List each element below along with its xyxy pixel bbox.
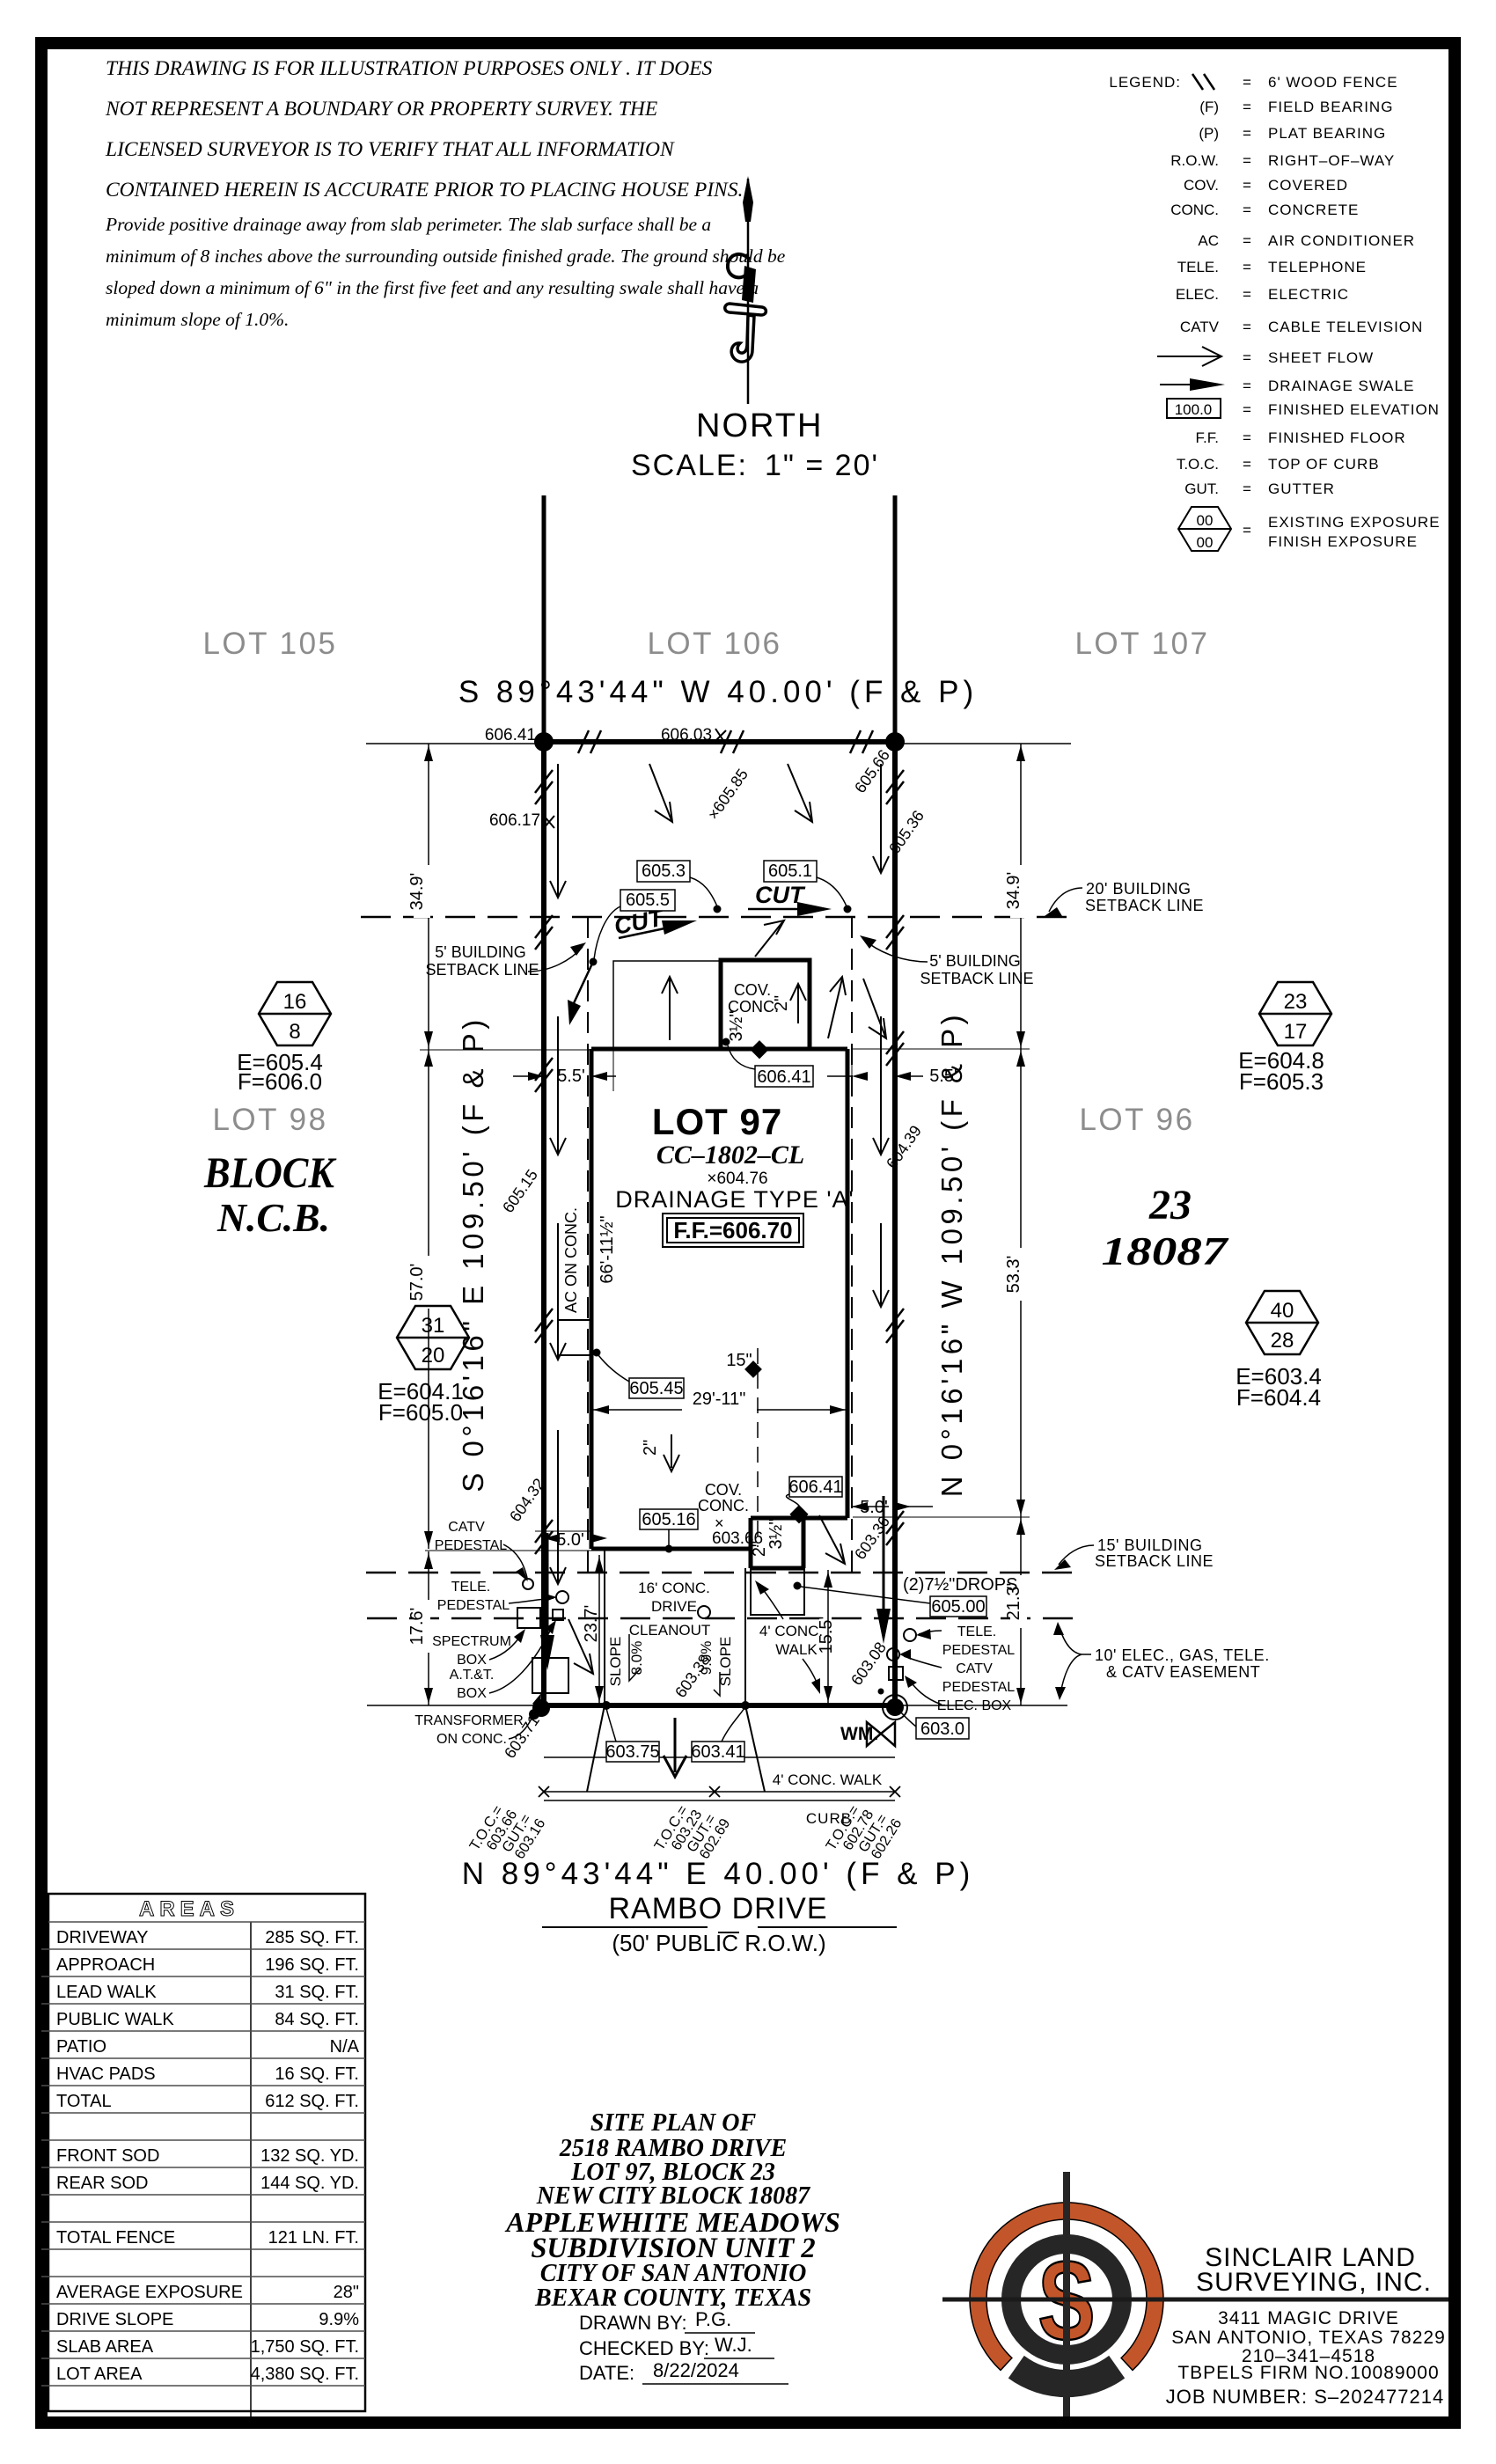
svg-text:5.5': 5.5' [557, 1067, 585, 1086]
svg-text:NORTH: NORTH [696, 407, 823, 444]
svg-text:COV.: COV. [1184, 177, 1219, 194]
svg-text:CONTAINED HEREIN IS ACCURATE P: CONTAINED HEREIN IS ACCURATE PRIOR TO PL… [106, 179, 743, 202]
svg-text:F.F.: F.F. [1196, 429, 1219, 446]
svg-text:605.1: 605.1 [768, 862, 812, 881]
svg-text:F=605.3: F=605.3 [1239, 1068, 1324, 1095]
svg-text:8.0%: 8.0% [628, 1641, 645, 1676]
svg-text:LOT 98: LOT 98 [212, 1103, 327, 1137]
svg-text:66'-11½": 66'-11½" [598, 1215, 617, 1283]
svg-text:FINISH EXPOSURE: FINISH EXPOSURE [1268, 533, 1418, 550]
svg-text:606.41: 606.41 [757, 1067, 810, 1087]
svg-text:PEDESTAL: PEDESTAL [435, 1538, 508, 1553]
svg-text:603.0: 603.0 [920, 1720, 964, 1739]
svg-text:SITE PLAN OF: SITE PLAN OF [590, 2109, 757, 2137]
svg-text:=: = [1243, 232, 1251, 249]
svg-text:FIELD BEARING: FIELD BEARING [1268, 99, 1393, 115]
svg-text:(50' PUBLIC R.O.W.): (50' PUBLIC R.O.W.) [612, 1930, 825, 1956]
svg-text:FRONT SOD: FRONT SOD [56, 2146, 159, 2166]
svg-text:DATE:: DATE: [579, 2362, 634, 2384]
svg-text:8: 8 [289, 1020, 300, 1044]
svg-text:LOT 107: LOT 107 [1074, 627, 1209, 661]
svg-text:DRIVE: DRIVE [651, 1598, 697, 1615]
svg-text:132 SQ. YD.: 132 SQ. YD. [260, 2146, 359, 2166]
svg-text:CONC.: CONC. [1170, 202, 1219, 218]
svg-text:SETBACK LINE: SETBACK LINE [425, 961, 539, 979]
svg-text:TELE.: TELE. [1177, 259, 1219, 275]
svg-text:APPROACH: APPROACH [56, 1955, 155, 1975]
svg-text:JOB NUMBER: S–202477214: JOB NUMBER: S–202477214 [1166, 2386, 1445, 2408]
svg-text:P.G.: P.G. [695, 2308, 731, 2330]
svg-text:ELEC. BOX: ELEC. BOX [937, 1698, 1012, 1713]
svg-text:DRAWN BY:: DRAWN BY: [579, 2312, 687, 2334]
svg-text:=: = [1243, 177, 1251, 194]
svg-text:603.41: 603.41 [691, 1742, 744, 1762]
svg-text:605.45: 605.45 [629, 1379, 683, 1398]
svg-text:N.C.B.: N.C.B. [216, 1195, 330, 1240]
svg-text:TELE.: TELE. [451, 1580, 490, 1595]
svg-text:=: = [1243, 74, 1251, 91]
svg-text:AVERAGE EXPOSURE: AVERAGE EXPOSURE [56, 2283, 243, 2302]
svg-text:84 SQ. FT.: 84 SQ. FT. [275, 2010, 359, 2029]
svg-text:CONC.: CONC. [728, 998, 779, 1016]
svg-text:SETBACK LINE: SETBACK LINE [920, 970, 1033, 987]
svg-text:SLAB AREA: SLAB AREA [56, 2337, 154, 2357]
svg-text:5.5': 5.5' [929, 1067, 957, 1086]
svg-text:605.00: 605.00 [931, 1597, 985, 1617]
svg-text:603.75: 603.75 [605, 1742, 659, 1762]
svg-text:ON CONC.: ON CONC. [436, 1732, 507, 1747]
svg-text:5' BUILDING: 5' BUILDING [929, 952, 1020, 970]
svg-text:FINISHED ELEVATION: FINISHED ELEVATION [1268, 401, 1440, 418]
svg-text:& CATV EASEMENT: & CATV EASEMENT [1106, 1663, 1260, 1681]
svg-text:CITY OF SAN ANTONIO: CITY OF SAN ANTONIO [540, 2260, 807, 2287]
svg-text:4' CONC. WALK: 4' CONC. WALK [773, 1771, 883, 1788]
svg-text:N 89°43'44" E 40.00' (F & P): N 89°43'44" E 40.00' (F & P) [462, 1857, 975, 1891]
svg-text:4' CONC.: 4' CONC. [759, 1623, 823, 1639]
svg-text:=: = [1243, 522, 1251, 539]
svg-text:=: = [1243, 152, 1251, 169]
svg-text:=: = [1243, 480, 1251, 497]
svg-text:CC–1802–CL: CC–1802–CL [656, 1140, 804, 1170]
svg-text:W.J.: W.J. [715, 2334, 752, 2356]
svg-text:EXISTING EXPOSURE: EXISTING EXPOSURE [1268, 514, 1441, 531]
svg-text:29'-11": 29'-11" [693, 1390, 746, 1409]
svg-text:605.3: 605.3 [642, 862, 686, 881]
svg-text:00: 00 [1197, 512, 1214, 529]
svg-text:6' WOOD FENCE: 6' WOOD FENCE [1268, 74, 1398, 91]
svg-text:20: 20 [422, 1344, 445, 1368]
svg-text:FINISHED FLOOR: FINISHED FLOOR [1268, 429, 1406, 446]
svg-text:RAMBO DRIVE: RAMBO DRIVE [608, 1892, 827, 1925]
svg-text:LOT 97: LOT 97 [652, 1101, 782, 1142]
svg-text:TOP OF CURB: TOP OF CURB [1268, 456, 1380, 473]
svg-text:AC ON CONC.: AC ON CONC. [562, 1207, 580, 1313]
svg-text:17: 17 [1284, 1020, 1308, 1044]
svg-text:DRIVEWAY: DRIVEWAY [56, 1928, 148, 1947]
svg-text:F=604.4: F=604.4 [1236, 1384, 1321, 1411]
svg-text:BLOCK: BLOCK [203, 1148, 337, 1197]
svg-text:TELEPHONE: TELEPHONE [1268, 259, 1367, 275]
svg-text:CATV: CATV [956, 1661, 993, 1676]
svg-text:AIR CONDITIONER: AIR CONDITIONER [1268, 232, 1415, 249]
svg-text:18087: 18087 [1102, 1228, 1229, 1273]
svg-text:53.3': 53.3' [1004, 1256, 1023, 1294]
svg-text:=: = [1243, 456, 1251, 473]
svg-text:SETBACK LINE: SETBACK LINE [1085, 897, 1204, 914]
svg-text:PLAT BEARING: PLAT BEARING [1268, 125, 1386, 142]
svg-text:23: 23 [1284, 990, 1308, 1014]
svg-text:A.T.&T.: A.T.&T. [450, 1668, 495, 1683]
svg-text:TELE.: TELE. [957, 1624, 996, 1639]
svg-text:BOX: BOX [457, 1686, 487, 1701]
svg-text:LEGEND:: LEGEND: [1109, 74, 1181, 91]
svg-text:LOT AREA: LOT AREA [56, 2365, 143, 2384]
svg-text:121 LN. FT.: 121 LN. FT. [268, 2228, 359, 2248]
svg-text:TBPELS FIRM NO.10089000: TBPELS FIRM NO.10089000 [1177, 2363, 1439, 2383]
svg-text:GUTTER: GUTTER [1268, 480, 1335, 497]
svg-text:BEXAR COUNTY, TEXAS: BEXAR COUNTY, TEXAS [534, 2284, 811, 2312]
svg-text:AREAS: AREAS [139, 1897, 239, 1921]
svg-text:PEDESTAL: PEDESTAL [942, 1643, 1016, 1658]
svg-text:THIS DRAWING IS FOR ILLUSTRATI: THIS DRAWING IS FOR ILLUSTRATION PURPOSE… [106, 57, 713, 80]
svg-text:57.0': 57.0' [407, 1264, 427, 1302]
svg-text:=: = [1243, 349, 1251, 366]
svg-text:=: = [1243, 401, 1251, 418]
svg-text:TOTAL FENCE: TOTAL FENCE [56, 2228, 175, 2248]
svg-text:15": 15" [726, 1351, 752, 1370]
svg-text:603.66: 603.66 [712, 1529, 763, 1548]
svg-text:9.9%: 9.9% [698, 1641, 715, 1676]
svg-text:606.41: 606.41 [485, 726, 536, 744]
svg-text:28: 28 [1271, 1329, 1294, 1353]
svg-text:9.9%: 9.9% [319, 2310, 359, 2329]
svg-text:DRAINAGE TYPE 'A': DRAINAGE TYPE 'A' [615, 1186, 854, 1213]
svg-text:23.7': 23.7' [582, 1605, 601, 1643]
svg-text:N/A: N/A [330, 2037, 360, 2057]
svg-text:34.9': 34.9' [407, 873, 427, 911]
svg-text:606.17: 606.17 [489, 811, 540, 830]
svg-text:15' BUILDING: 15' BUILDING [1097, 1536, 1202, 1554]
svg-text:606.41: 606.41 [788, 1478, 842, 1497]
svg-text:F=606.0: F=606.0 [238, 1068, 322, 1095]
svg-text:16 SQ. FT.: 16 SQ. FT. [275, 2064, 359, 2084]
svg-text:=: = [1243, 99, 1251, 115]
svg-text:3411 MAGIC DRIVE: 3411 MAGIC DRIVE [1218, 2308, 1399, 2328]
svg-text:5.0': 5.0' [556, 1530, 584, 1550]
svg-text:40: 40 [1271, 1299, 1294, 1323]
svg-text:PEDESTAL: PEDESTAL [942, 1680, 1016, 1695]
svg-text:CLEANOUT: CLEANOUT [629, 1622, 711, 1639]
svg-text:SHEET FLOW: SHEET FLOW [1268, 349, 1374, 366]
svg-text:(F): (F) [1199, 99, 1219, 115]
svg-text:COV.: COV. [734, 981, 771, 999]
svg-text:=: = [1243, 125, 1251, 142]
svg-text:(P): (P) [1199, 125, 1219, 142]
svg-text:100.0: 100.0 [1175, 401, 1213, 418]
svg-text:17.6': 17.6' [407, 1608, 427, 1646]
svg-text:16: 16 [283, 990, 307, 1014]
svg-text:3½": 3½" [766, 1519, 786, 1550]
svg-text:S 89°43'44" W 40.00' (F & P): S 89°43'44" W 40.00' (F & P) [458, 675, 978, 709]
svg-text:(2)7½"DROPS: (2)7½"DROPS [903, 1575, 1017, 1595]
svg-text:Provide positive drainage away: Provide positive drainage away from slab… [105, 214, 711, 235]
svg-text:CONCRETE: CONCRETE [1268, 202, 1359, 218]
svg-text:606.03: 606.03 [661, 726, 712, 744]
svg-text:605.5: 605.5 [626, 891, 670, 910]
svg-text:20' BUILDING: 20' BUILDING [1086, 880, 1191, 898]
svg-text:COVERED: COVERED [1268, 177, 1348, 194]
svg-text:SAN ANTONIO, TEXAS 78229: SAN ANTONIO, TEXAS 78229 [1171, 2328, 1446, 2348]
svg-text:10' ELEC., GAS, TELE.: 10' ELEC., GAS, TELE. [1095, 1646, 1270, 1664]
svg-text:CATV: CATV [1180, 319, 1220, 335]
svg-text:WALK: WALK [775, 1641, 818, 1658]
svg-text:AC: AC [1198, 232, 1219, 249]
svg-text:GUT.: GUT. [1184, 480, 1219, 497]
svg-text:TRANSFORMER: TRANSFORMER [414, 1713, 524, 1728]
svg-text:31: 31 [422, 1314, 445, 1338]
svg-text:sloped down a minimum of 6" in: sloped down a minimum of 6" in the first… [106, 277, 759, 298]
svg-text:minimum slope of 1.0%.: minimum slope of 1.0%. [106, 309, 289, 330]
svg-text:SURVEYING, INC.: SURVEYING, INC. [1196, 2268, 1432, 2297]
svg-text:NOT REPRESENT A BOUNDARY OR PR: NOT REPRESENT A BOUNDARY OR PROPERTY SUR… [105, 98, 657, 121]
svg-text:ELECTRIC: ELECTRIC [1268, 286, 1349, 303]
svg-text:LICENSED SURVEYOR IS TO VERIFY: LICENSED SURVEYOR IS TO VERIFY THAT ALL … [105, 138, 675, 161]
svg-text:CONC.: CONC. [698, 1497, 749, 1514]
svg-text:2": 2" [641, 1440, 660, 1456]
svg-text:COV.: COV. [705, 1481, 742, 1499]
svg-text:5' BUILDING: 5' BUILDING [435, 943, 525, 961]
svg-text:minimum of 8 inches above the: minimum of 8 inches above the surroundin… [106, 246, 786, 267]
svg-text:LOT 105: LOT 105 [202, 627, 337, 661]
svg-text:BOX: BOX [457, 1653, 487, 1668]
svg-text:T.O.C.: T.O.C. [1177, 456, 1219, 473]
svg-text:CATV: CATV [448, 1520, 485, 1535]
svg-text:=: = [1243, 378, 1251, 394]
svg-text:SETBACK LINE: SETBACK LINE [1095, 1552, 1214, 1570]
svg-text:196 SQ. FT.: 196 SQ. FT. [265, 1955, 359, 1975]
svg-text:LEAD WALK: LEAD WALK [56, 1983, 157, 2002]
svg-text:CUT: CUT [755, 882, 806, 908]
svg-text:=: = [1243, 429, 1251, 446]
svg-text:WM.: WM. [840, 1724, 878, 1744]
svg-text:=: = [1243, 319, 1251, 335]
svg-text:CABLE TELEVISION: CABLE TELEVISION [1268, 319, 1423, 335]
svg-text:SCALE: 1" = 20': SCALE: 1" = 20' [631, 449, 879, 482]
svg-text:SPECTRUM: SPECTRUM [432, 1634, 511, 1649]
svg-text:HVAC PADS: HVAC PADS [56, 2064, 156, 2084]
svg-text:ELEC.: ELEC. [1176, 286, 1219, 303]
svg-text:×604.76: ×604.76 [707, 1170, 767, 1188]
svg-text:4,380 SQ. FT.: 4,380 SQ. FT. [251, 2365, 359, 2384]
svg-text:PUBLIC WALK: PUBLIC WALK [56, 2010, 174, 2029]
svg-text:PATIO: PATIO [56, 2037, 106, 2057]
svg-text:00: 00 [1197, 534, 1214, 551]
svg-text:605.16: 605.16 [642, 1510, 695, 1529]
svg-text:34.9': 34.9' [1004, 872, 1023, 910]
svg-text:LOT 106: LOT 106 [647, 627, 781, 661]
svg-text:CHECKED BY:: CHECKED BY: [579, 2337, 709, 2359]
svg-text:8/22/2024: 8/22/2024 [653, 2359, 739, 2381]
svg-text:F=605.0: F=605.0 [378, 1399, 463, 1426]
svg-text:PEDESTAL: PEDESTAL [437, 1598, 510, 1613]
svg-text:=: = [1243, 202, 1251, 218]
svg-text:TOTAL: TOTAL [56, 2092, 112, 2111]
svg-text:144 SQ. YD.: 144 SQ. YD. [260, 2174, 359, 2193]
svg-text:F.F.=606.70: F.F.=606.70 [673, 1217, 792, 1243]
svg-text:DRIVE SLOPE: DRIVE SLOPE [56, 2310, 173, 2329]
svg-text:16' CONC.: 16' CONC. [638, 1580, 710, 1596]
svg-text:612 SQ. FT.: 612 SQ. FT. [265, 2092, 359, 2111]
svg-text:RIGHT–OF–WAY: RIGHT–OF–WAY [1268, 152, 1395, 169]
svg-text:SLOPE: SLOPE [607, 1637, 624, 1687]
svg-text:31 SQ. FT.: 31 SQ. FT. [275, 1983, 359, 2002]
svg-text:LOT 96: LOT 96 [1079, 1103, 1194, 1137]
svg-text:=: = [1243, 259, 1251, 275]
svg-text:1,750 SQ. FT.: 1,750 SQ. FT. [251, 2337, 359, 2357]
svg-text:285 SQ. FT.: 285 SQ. FT. [265, 1928, 359, 1947]
svg-text:DRAINAGE SWALE: DRAINAGE SWALE [1268, 378, 1414, 394]
svg-text:28": 28" [334, 2283, 359, 2302]
svg-text:=: = [1243, 286, 1251, 303]
svg-text:REAR SOD: REAR SOD [56, 2174, 148, 2193]
svg-text:23: 23 [1148, 1182, 1192, 1228]
svg-text:R.O.W.: R.O.W. [1170, 152, 1219, 169]
